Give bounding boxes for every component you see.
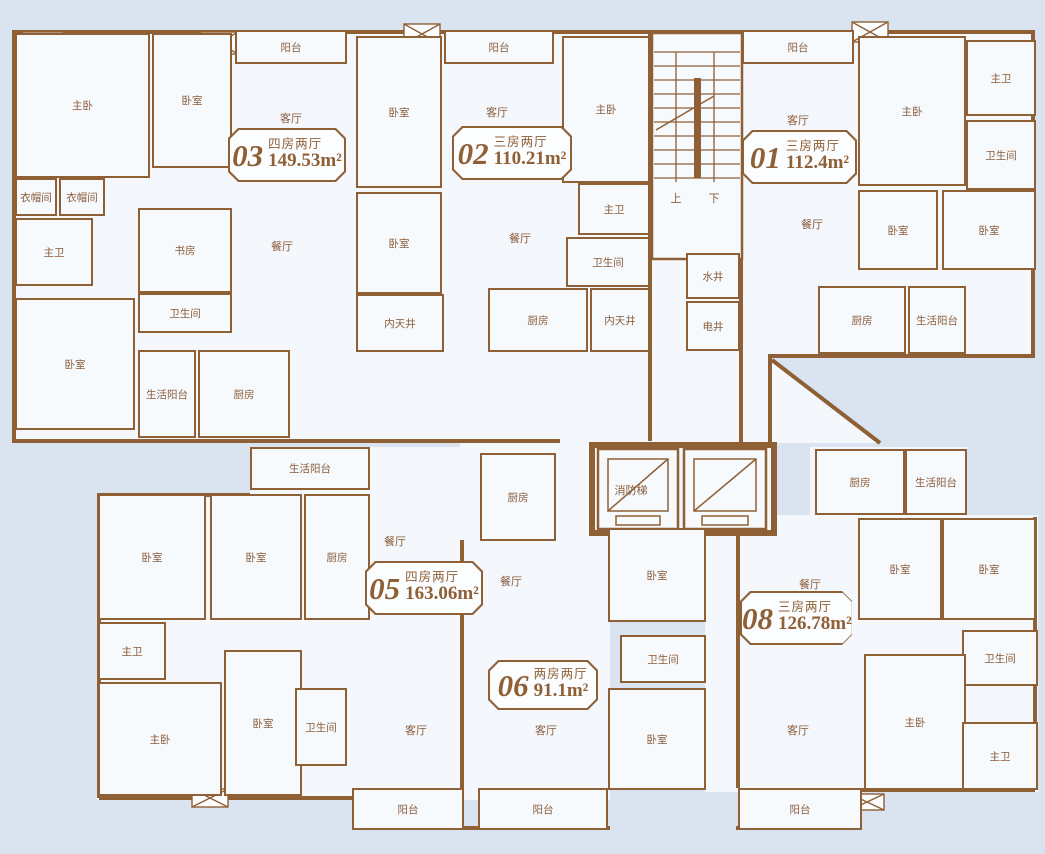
room-box: 卫生间: [966, 120, 1036, 190]
room-box: 阳台: [738, 788, 862, 830]
room-label: 书房: [175, 243, 196, 258]
unit-type: 三房两厅: [786, 140, 849, 154]
room-label: 餐厅: [271, 238, 293, 254]
room-label: 阳台: [533, 802, 554, 817]
room-label: 客厅: [535, 722, 557, 738]
room-box: 卧室: [858, 518, 942, 620]
room-box: 主卧: [858, 36, 966, 186]
room-label: 客厅: [405, 722, 427, 738]
room-label: 客厅: [787, 722, 809, 738]
room-box: 主卫: [578, 183, 650, 235]
unit-badge: 03四房两厅149.53m²: [228, 128, 346, 182]
room-box: 衣帽间: [15, 178, 57, 216]
room-box: 主卧: [15, 33, 150, 178]
room-box: 厨房: [818, 286, 906, 354]
unit-number: 08: [742, 603, 773, 634]
room-box: 卫生间: [620, 635, 706, 683]
room-label: 主卧: [902, 104, 923, 119]
unit-type: 三房两厅: [778, 601, 852, 615]
room-label: 阳台: [398, 802, 419, 817]
unit-info: 四房两厅149.53m²: [268, 138, 342, 172]
room-label: 卫生间: [305, 720, 337, 735]
room-label: 卫生间: [985, 148, 1017, 163]
room-label: 卫生间: [169, 306, 201, 321]
room-box: 卧室: [942, 518, 1036, 620]
room-box: 厨房: [198, 350, 290, 438]
room-label: 卫生间: [984, 651, 1016, 666]
unit-badge: 01三房两厅112.4m²: [742, 130, 857, 184]
room-label: 生活阳台: [915, 475, 957, 490]
unit-number: 01: [750, 142, 781, 173]
room-label: 客厅: [787, 112, 809, 128]
room-box: 阳台: [235, 30, 347, 64]
unit-number: 03: [232, 140, 263, 171]
room-box: 电井: [686, 301, 740, 351]
room-box: 卧室: [15, 298, 135, 430]
room-box: 卧室: [608, 528, 706, 622]
room-label: 厨房: [850, 475, 871, 490]
unit-badge-inner: 06两房两厅91.1m²: [490, 662, 596, 708]
room-box: 卧室: [224, 650, 302, 796]
room-box: 卫生间: [295, 688, 347, 766]
room-box: 水井: [686, 253, 740, 299]
room-label: 卧室: [253, 716, 274, 731]
unit-badge-inner: 05四房两厅163.06m²: [367, 563, 481, 613]
unit-badge: 06两房两厅91.1m²: [488, 660, 598, 710]
room-label: 卫生间: [647, 652, 679, 667]
room-label: 卧室: [647, 732, 668, 747]
room-box: 厨房: [480, 453, 556, 541]
room-box: 主卧: [562, 36, 650, 183]
unit-type: 两房两厅: [534, 668, 589, 682]
unit-area: 112.4m²: [786, 153, 849, 174]
room-label: 卧室: [647, 568, 668, 583]
unit-badge-inner: 03四房两厅149.53m²: [230, 130, 344, 180]
room-box: 厨房: [488, 288, 588, 352]
unit-number: 02: [458, 138, 489, 169]
room-box: 卫生间: [566, 237, 650, 287]
unit-area: 126.78m²: [778, 614, 852, 635]
room-label: 阳台: [790, 802, 811, 817]
room-box: 生活阳台: [905, 449, 967, 515]
room-label: 卧室: [890, 562, 911, 577]
unit-badge: 08三房两厅126.78m²: [740, 591, 852, 645]
room-label: 电井: [703, 319, 724, 334]
room-box: 内天井: [356, 294, 444, 352]
unit-area: 110.21m²: [494, 149, 567, 170]
unit-area: 163.06m²: [405, 584, 479, 605]
room-box: 主卫: [962, 722, 1038, 790]
room-label: 卧室: [979, 223, 1000, 238]
unit-type: 三房两厅: [494, 136, 567, 150]
room-box: 主卫: [15, 218, 93, 286]
room-label: 主卧: [72, 98, 93, 113]
room-label: 厨房: [528, 313, 549, 328]
room-label: 客厅: [486, 104, 508, 120]
room-label: 消防梯: [615, 482, 648, 498]
room-label: 主卧: [596, 102, 617, 117]
room-box: 卧室: [210, 494, 302, 620]
unit-area: 91.1m²: [534, 681, 589, 702]
room-box: 阳台: [444, 30, 554, 64]
room-label: 主卫: [990, 749, 1011, 764]
room-box: 阳台: [742, 30, 854, 64]
unit-info: 四房两厅163.06m²: [405, 571, 479, 605]
room-label: 内天井: [384, 316, 416, 331]
room-label: 卧室: [389, 105, 410, 120]
room-label: 餐厅: [801, 216, 823, 232]
room-label: 主卧: [905, 715, 926, 730]
unit-number: 06: [498, 670, 529, 701]
room-box: 卧室: [152, 33, 232, 168]
room-label: 卫生间: [592, 255, 624, 270]
room-label: 餐厅: [509, 230, 531, 246]
room-box: 卫生间: [962, 630, 1038, 686]
room-box: 卧室: [858, 190, 938, 270]
unit-area: 149.53m²: [268, 151, 342, 172]
room-label: 主卫: [991, 71, 1012, 86]
unit-type: 四房两厅: [405, 571, 479, 585]
room-label: 厨房: [327, 550, 348, 565]
room-label: 阳台: [788, 40, 809, 55]
room-box: 卧室: [608, 688, 706, 790]
room-label: 水井: [703, 269, 724, 284]
room-box: 主卧: [98, 682, 222, 796]
floor-plan: 主卧卧室阳台衣帽间衣帽间主卫书房卫生间卧室生活阳台厨房客厅餐厅03四房两厅149…: [0, 0, 1045, 854]
room-label: 卧室: [65, 357, 86, 372]
unit-badge-inner: 08三房两厅126.78m²: [742, 593, 852, 643]
staircase-icon: [652, 33, 742, 259]
room-label: 主卫: [44, 245, 65, 260]
unit-badge: 05四房两厅163.06m²: [365, 561, 483, 615]
room-label: 主卫: [604, 202, 625, 217]
room-label: 卧室: [389, 236, 410, 251]
room-box: 卧室: [356, 192, 442, 294]
unit-info: 三房两厅126.78m²: [778, 601, 852, 635]
room-label: 卧室: [246, 550, 267, 565]
room-label: 生活阳台: [289, 461, 331, 476]
room-label: 厨房: [234, 387, 255, 402]
room-box: 生活阳台: [908, 286, 966, 354]
room-box: 衣帽间: [59, 178, 105, 216]
room-box: 内天井: [590, 288, 650, 352]
room-label: 客厅: [280, 110, 302, 126]
unit-info: 三房两厅112.4m²: [786, 140, 849, 174]
unit-info: 两房两厅91.1m²: [534, 668, 589, 702]
room-box: 厨房: [815, 449, 905, 515]
room-label: 卧室: [142, 550, 163, 565]
room-label: 卧室: [888, 223, 909, 238]
room-box: 阳台: [478, 788, 608, 830]
room-label: 衣帽间: [20, 190, 52, 205]
room-box: 卧室: [356, 36, 442, 188]
unit-number: 05: [369, 573, 400, 604]
unit-info: 三房两厅110.21m²: [494, 136, 567, 170]
room-box: 主卧: [864, 654, 966, 790]
room-box: 卧室: [98, 494, 206, 620]
room-label: 生活阳台: [916, 313, 958, 328]
room-label: 厨房: [852, 313, 873, 328]
room-label: 餐厅: [500, 573, 522, 589]
room-label: 卧室: [182, 93, 203, 108]
room-label: 阳台: [489, 40, 510, 55]
room-box: 主卫: [966, 40, 1036, 116]
room-box: 阳台: [352, 788, 464, 830]
room-label: 内天井: [604, 313, 636, 328]
room-box: 书房: [138, 208, 232, 293]
room-box: 生活阳台: [138, 350, 196, 438]
room-box: 卧室: [942, 190, 1036, 270]
room-label: 餐厅: [384, 533, 406, 549]
room-label: 主卫: [122, 644, 143, 659]
room-label: 餐厅: [799, 576, 821, 592]
unit-badge: 02三房两厅110.21m²: [452, 126, 572, 180]
room-label: 衣帽间: [66, 190, 98, 205]
room-label: 主卧: [150, 732, 171, 747]
unit-type: 四房两厅: [268, 138, 342, 152]
room-label: 下: [709, 190, 720, 206]
room-label: 卧室: [979, 562, 1000, 577]
room-box: 卫生间: [138, 293, 232, 333]
room-label: 上: [671, 190, 682, 206]
room-label: 阳台: [281, 40, 302, 55]
room-label: 厨房: [508, 490, 529, 505]
room-box: 生活阳台: [250, 447, 370, 490]
unit-badge-inner: 01三房两厅112.4m²: [744, 132, 855, 182]
room-box: 主卫: [98, 622, 166, 680]
unit-badge-inner: 02三房两厅110.21m²: [454, 128, 570, 178]
room-box: 厨房: [304, 494, 370, 620]
room-label: 生活阳台: [146, 387, 188, 402]
